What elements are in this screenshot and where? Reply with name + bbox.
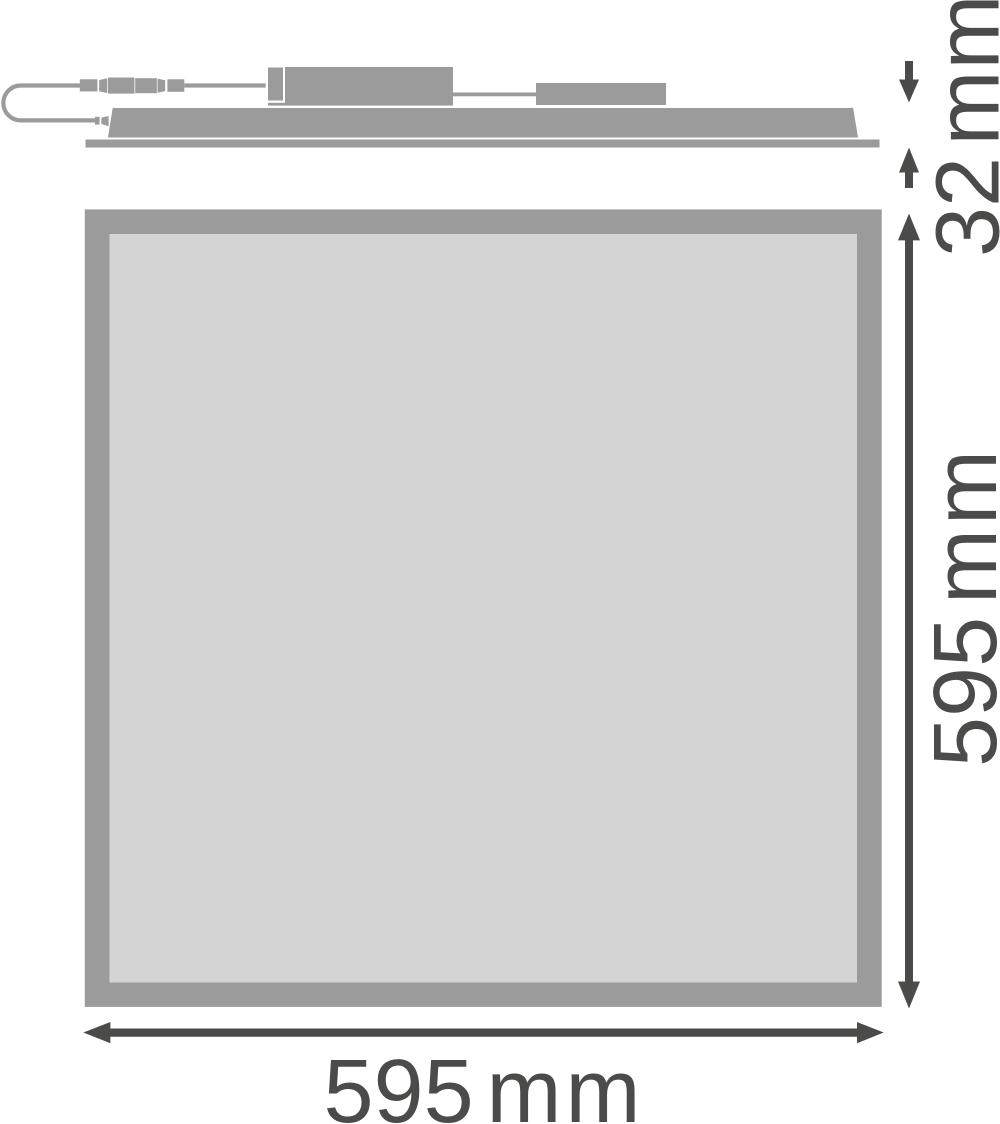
svg-text:2: 2: [919, 157, 1000, 207]
svg-text:m: m: [919, 71, 1000, 146]
svg-text:3: 3: [919, 207, 1000, 257]
svg-text:m: m: [566, 1042, 641, 1124]
svg-text:595: 595: [324, 1042, 474, 1124]
svg-text:m: m: [487, 1042, 562, 1124]
svg-text:m: m: [919, 0, 1000, 70]
svg-text:595: 595: [916, 617, 1000, 767]
svg-text:m: m: [916, 450, 1000, 525]
svg-text:m: m: [916, 529, 1000, 604]
